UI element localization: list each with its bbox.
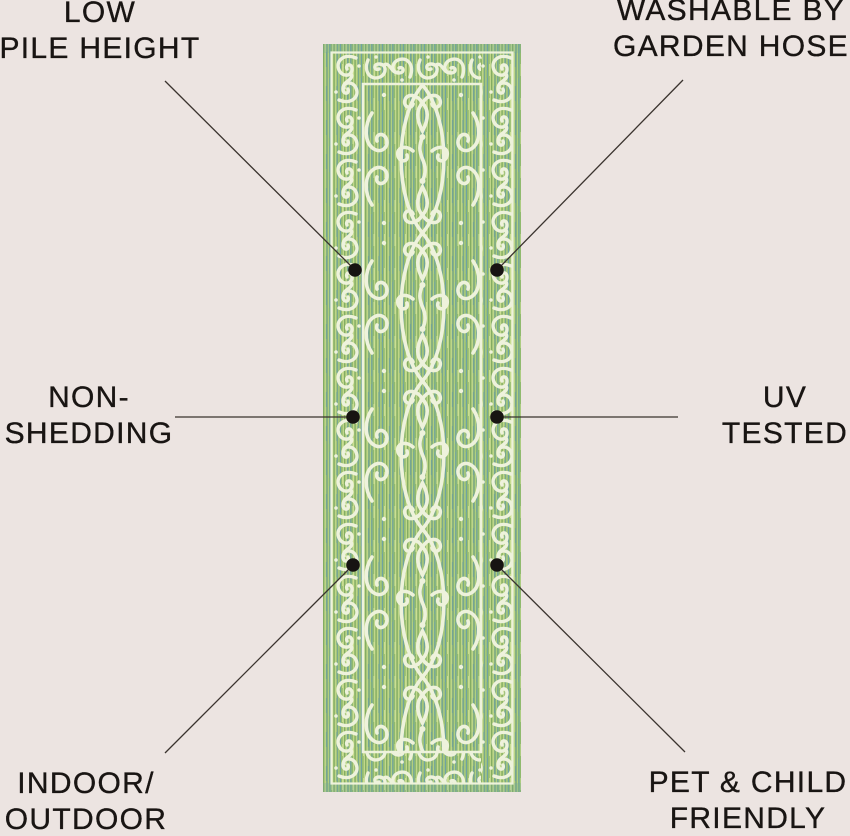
callout-label-uv-tested: UV TESTED xyxy=(674,380,850,452)
callout-label-line: WASHABLE BY xyxy=(601,0,850,29)
callout-label-line: FRIENDLY xyxy=(637,801,850,836)
callout-label-line: PILE HEIGHT xyxy=(0,31,210,67)
callout-label-washable-by-garden-hose: WASHABLE BY GARDEN HOSE xyxy=(601,0,850,65)
callout-label-line: NON- xyxy=(0,380,200,416)
callout-label-non-shedding: NON- SHEDDING xyxy=(0,380,200,452)
callout-dot xyxy=(346,558,360,572)
callout-label-line: OUTDOOR xyxy=(0,802,197,836)
callout-dot xyxy=(490,558,504,572)
callout-label-low-pile-height: LOW PILE HEIGHT xyxy=(0,0,210,67)
callout-label-pet-child-friendly: PET & CHILD FRIENDLY xyxy=(637,765,850,836)
callout-label-line: TESTED xyxy=(674,416,850,452)
callout-label-line: PET & CHILD xyxy=(637,765,850,801)
callout-dot xyxy=(490,410,504,424)
callout-label-line: INDOOR/ xyxy=(0,766,197,802)
product-feature-infographic: LOW PILE HEIGHT WASHABLE BY GARDEN HOSE … xyxy=(0,0,850,836)
callout-label-line: UV xyxy=(674,380,850,416)
callout-dot xyxy=(490,263,504,277)
callout-line xyxy=(497,80,683,270)
rug-field-pattern xyxy=(364,85,480,751)
callout-label-line: SHEDDING xyxy=(0,416,200,452)
callout-dot xyxy=(346,410,360,424)
callout-label-line: LOW xyxy=(0,0,210,31)
callout-dot xyxy=(348,263,362,277)
callout-label-line: GARDEN HOSE xyxy=(601,29,850,65)
callout-label-indoor-outdoor: INDOOR/ OUTDOOR xyxy=(0,766,197,836)
callout-line xyxy=(497,565,685,752)
